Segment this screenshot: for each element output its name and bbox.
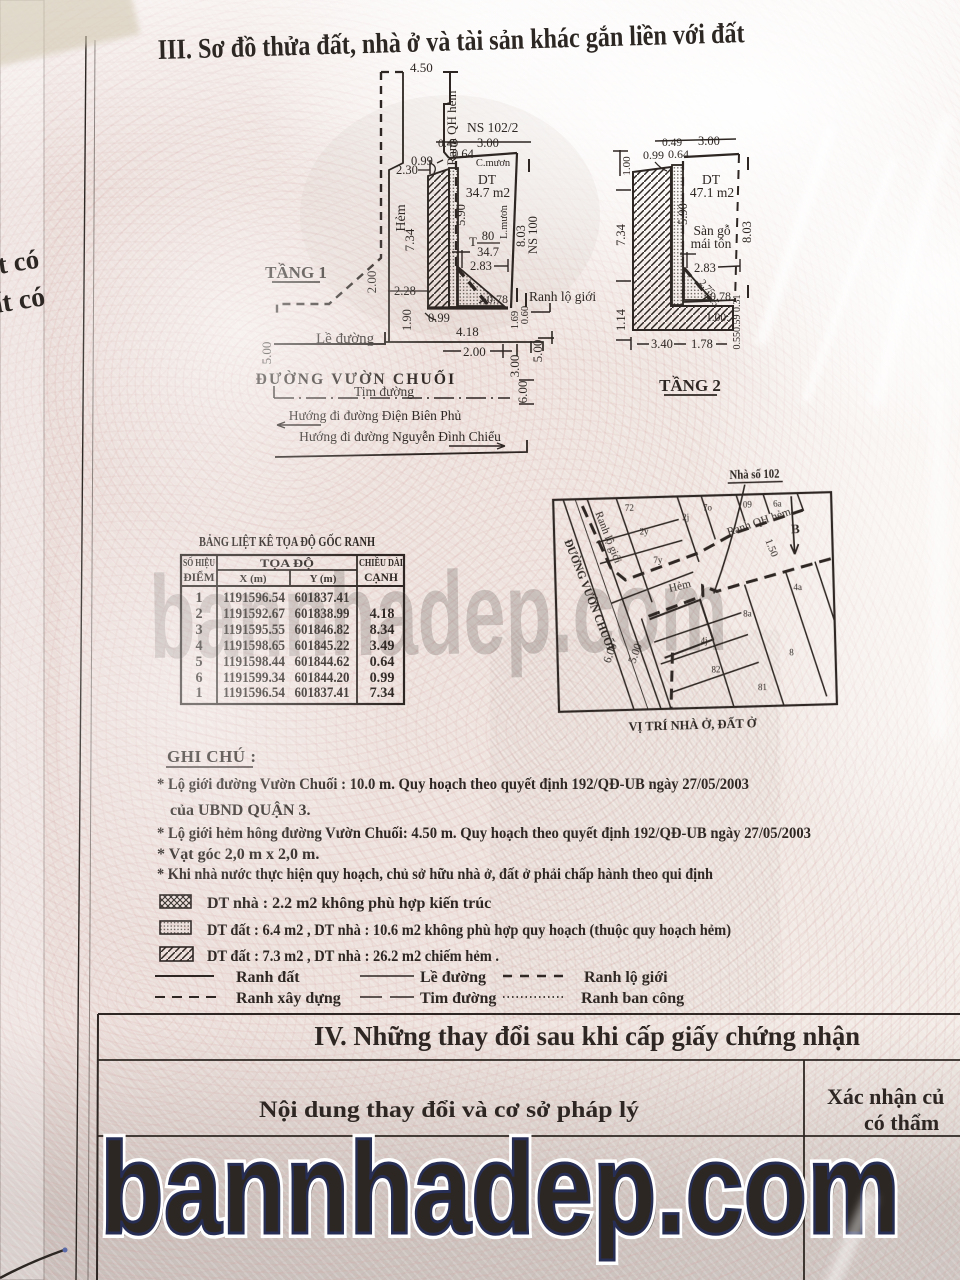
svg-text:5.90: 5.90 [676,203,690,225]
svg-text:L.mươn: L.mươn [499,204,510,238]
svg-text:bannhadep.com: bannhadep.com [100,1115,900,1261]
svg-text:1.78: 1.78 [691,337,713,351]
svg-text:mái tôn: mái tôn [691,236,732,251]
svg-text:3.00: 3.00 [507,355,522,378]
svg-text:NS 102/2: NS 102/2 [467,120,518,135]
svg-text:0.64: 0.64 [452,147,475,161]
svg-text:3.00: 3.00 [477,136,499,150]
svg-text:3.00: 3.00 [698,134,720,148]
svg-text:2j: 2j [682,512,689,522]
svg-text:Xác nhận củ: Xác nhận củ [827,1084,944,1109]
svg-text:6a: 6a [773,499,782,509]
svg-text:Lề đường: Lề đường [420,969,486,986]
svg-text:DT đất : 7.3 m2 , DT nhà : 26.: DT đất : 7.3 m2 , DT nhà : 26.2 m2 chiếm… [207,948,499,965]
svg-text:2.83: 2.83 [470,259,492,273]
svg-text:4.50: 4.50 [410,60,433,75]
svg-text:5.90: 5.90 [454,204,468,226]
svg-text:T: T [469,234,477,249]
svg-text:7o: 7o [703,502,713,512]
svg-text:Tim đường: Tim đường [420,990,496,1007]
svg-text:0.60: 0.60 [520,306,531,324]
svg-text:4.18: 4.18 [456,324,479,339]
svg-text:1.00: 1.00 [621,156,633,176]
svg-text:0.64: 0.64 [668,147,689,161]
svg-text:0.78: 0.78 [710,289,731,303]
svg-text:1.50: 1.50 [762,537,779,558]
svg-text:Nhà số 102: Nhà số 102 [729,467,779,482]
svg-text:3.40: 3.40 [651,337,673,351]
svg-text:47.1 m2: 47.1 m2 [690,185,734,200]
svg-text:34.7: 34.7 [477,245,499,259]
svg-text:4a: 4a [793,582,802,592]
svg-text:2y: 2y [639,526,649,536]
svg-text:09: 09 [743,499,753,509]
svg-text:0.99: 0.99 [643,148,664,162]
svg-text:1.00:: 1.00: [706,312,729,324]
svg-text:2.83: 2.83 [694,261,716,275]
svg-text:72: 72 [625,503,634,513]
svg-text:III. Sơ đồ thửa đất, nhà ở và: III. Sơ đồ thửa đất, nhà ở và tài sản kh… [157,18,745,66]
svg-text:2.00: 2.00 [463,344,486,359]
svg-text:8.03: 8.03 [740,221,754,243]
svg-text:8a: 8a [743,608,752,618]
svg-text:8: 8 [789,647,794,657]
svg-text:0.78: 0.78 [487,292,508,306]
svg-text:80: 80 [482,229,495,243]
svg-text:C.mươn: C.mươn [476,158,511,169]
svg-text:Ranh lộ giới: Ranh lộ giới [529,289,596,304]
svg-text:1.14: 1.14 [614,308,628,331]
svg-text:NS 100: NS 100 [526,216,540,254]
svg-text:7.34: 7.34 [614,223,628,246]
svg-text:Ranh đất: Ranh đất [236,969,300,986]
svg-text:IV. Những thay đổi sau khi cấp: IV. Những thay đổi sau khi cấp giấy chứn… [314,1021,860,1051]
svg-text:34.7 m2: 34.7 m2 [466,185,510,200]
svg-text:TẦNG 2: TẦNG 2 [659,376,721,395]
svg-text:0.550.59 0.31: 0.550.59 0.31 [732,295,743,350]
svg-text:6.00: 6.00 [515,381,530,404]
svg-text:5.00: 5.00 [530,340,545,363]
svg-text:Ranh xây dựng: Ranh xây dựng [236,990,341,1007]
